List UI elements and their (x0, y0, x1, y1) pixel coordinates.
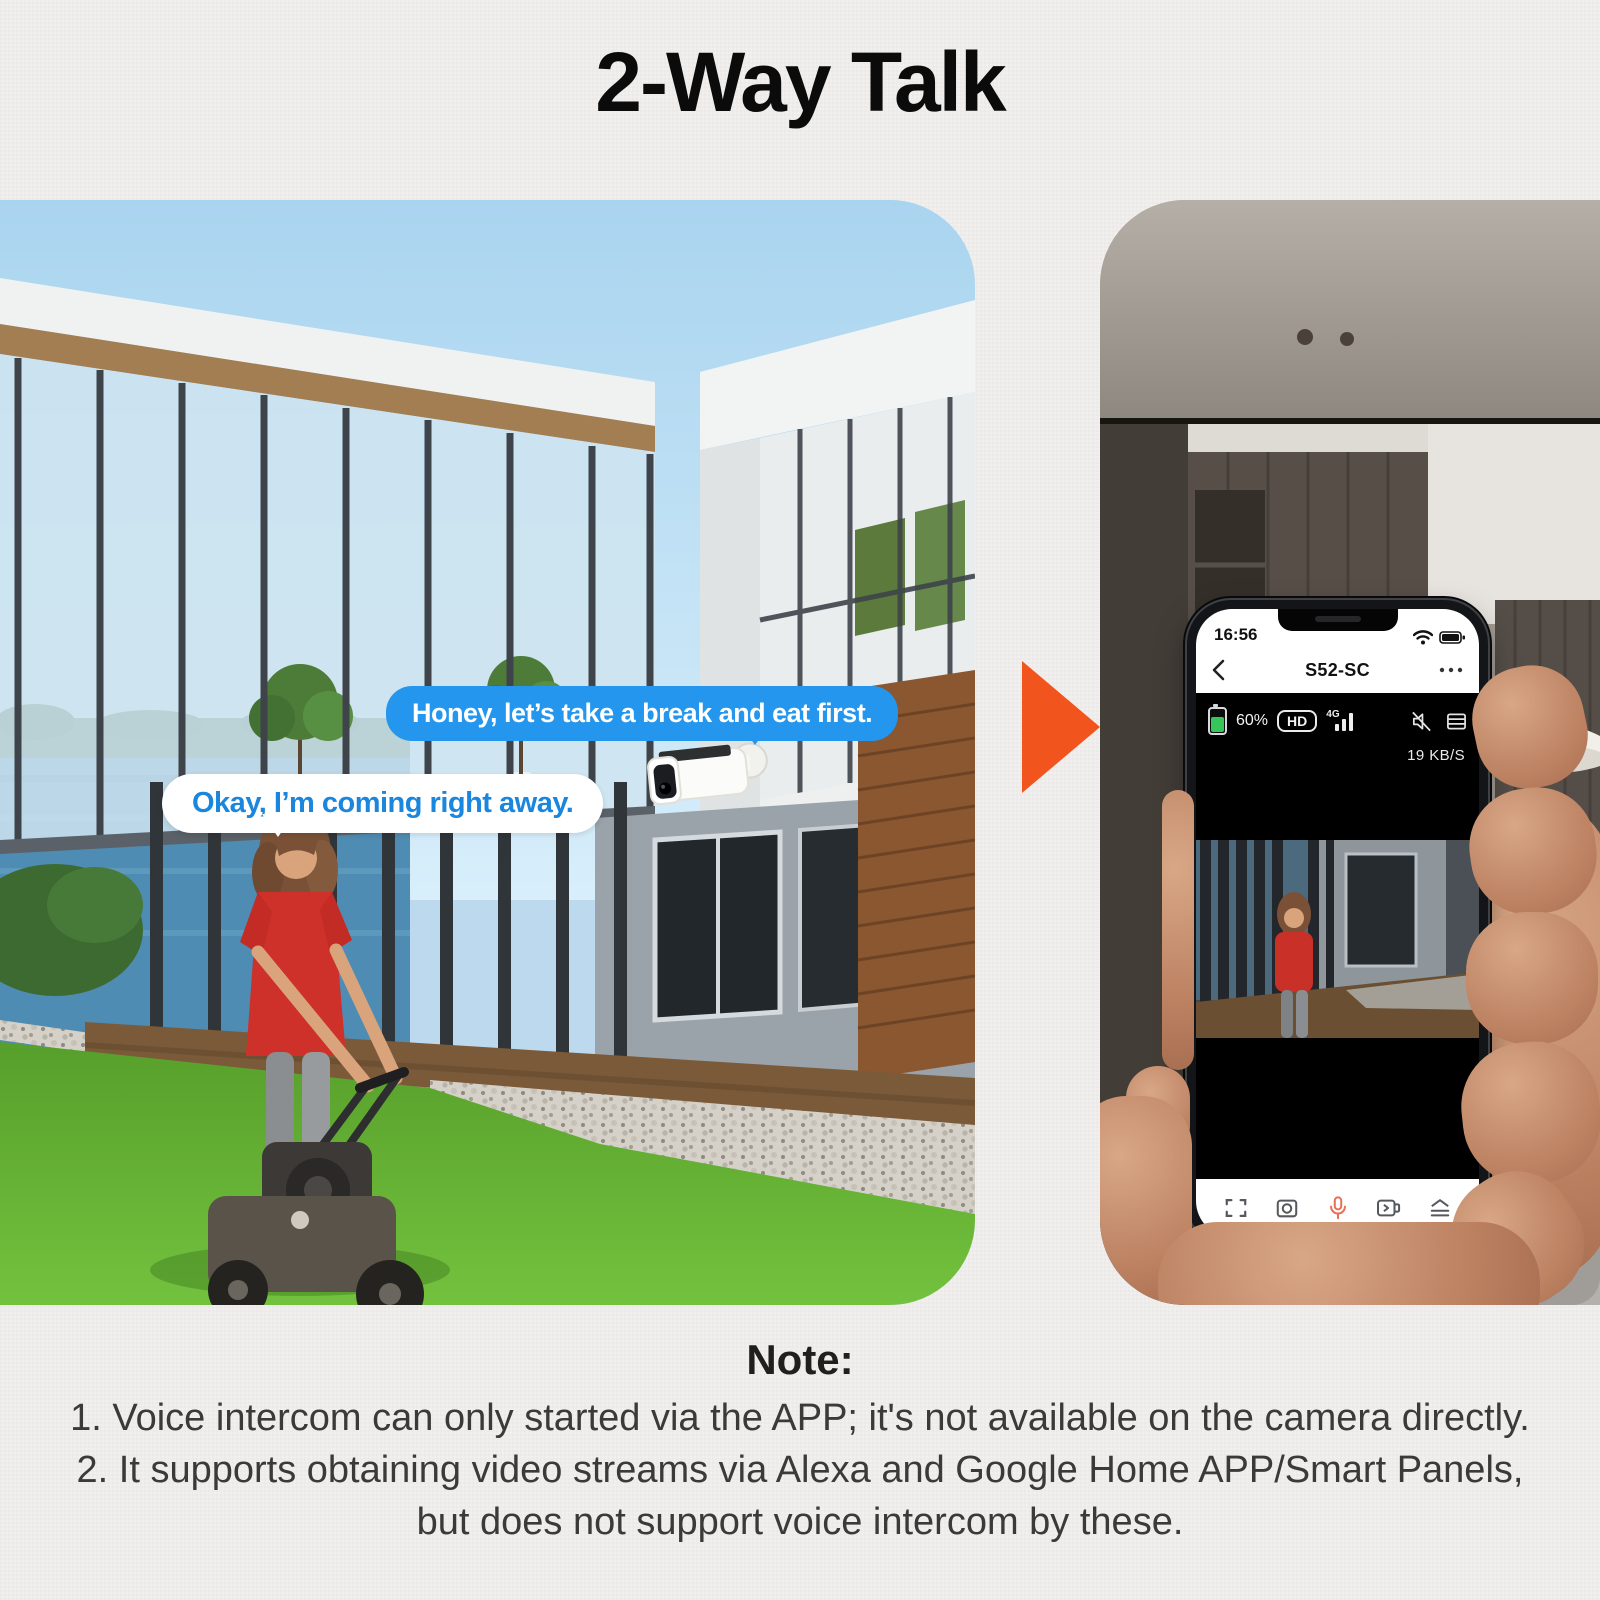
back-icon[interactable] (1212, 659, 1225, 681)
note-section: Note: 1. Voice intercom can only started… (0, 1336, 1600, 1548)
bitrate-label: 19 KB/S (1196, 735, 1479, 764)
arrow-right-icon (1022, 661, 1100, 793)
status-time: 16:56 (1214, 625, 1257, 645)
speaker-muted-icon[interactable] (1410, 710, 1433, 733)
battery-icon (1439, 631, 1465, 644)
hand-bottom (1158, 1222, 1540, 1305)
record-icon[interactable] (1372, 1191, 1406, 1225)
page: 2-Way Talk (0, 0, 1600, 1600)
hd-badge[interactable]: HD (1277, 710, 1317, 732)
house-scene (0, 200, 975, 1305)
live-view: 60% HD 4G (1196, 693, 1479, 1237)
camera-feed (1196, 840, 1479, 1038)
page-title: 2-Way Talk (0, 34, 1600, 131)
snapshot-icon[interactable] (1270, 1191, 1304, 1225)
wifi-icon (1413, 630, 1433, 645)
smartphone: 16:56 (1185, 598, 1490, 1248)
note-line-3: but does not support voice intercom by t… (0, 1496, 1600, 1548)
note-heading: Note: (0, 1336, 1600, 1384)
phone-header: 16:56 (1196, 609, 1479, 693)
finger (1162, 790, 1194, 1070)
finger (1466, 912, 1598, 1044)
note-line-1: 1. Voice intercom can only started via t… (0, 1392, 1600, 1444)
battery-level-icon (1208, 707, 1227, 735)
network-label: 4G (1326, 709, 1339, 720)
camera-feed-image (1196, 840, 1479, 1038)
phone-notch (1278, 609, 1398, 631)
menu-icon[interactable] (1423, 1191, 1457, 1225)
battery-percent: 60% (1236, 712, 1268, 730)
camera-speech-bubble: Honey, let’s take a break and eat first. (386, 686, 898, 741)
signal-4g-icon: 4G (1326, 709, 1356, 733)
status-bar: 16:56 (1196, 609, 1479, 647)
device-name: S52-SC (1252, 660, 1423, 681)
stream-stats-row: 60% HD 4G (1196, 693, 1479, 735)
app-nav-bar: S52-SC (1196, 647, 1479, 693)
phone-photo-panel: 16:56 (1100, 200, 1600, 1305)
stream-list-icon[interactable] (1446, 711, 1467, 732)
more-icon[interactable] (1439, 667, 1463, 673)
phone-screen: 16:56 (1196, 609, 1479, 1237)
fullscreen-icon[interactable] (1219, 1191, 1253, 1225)
house-photo-panel: Honey, let’s take a break and eat first.… (0, 200, 975, 1305)
note-line-2: 2. It supports obtaining video streams v… (0, 1444, 1600, 1496)
talk-mic-icon[interactable] (1321, 1191, 1355, 1225)
person-speech-bubble: Okay, I’m coming right away. (162, 774, 603, 833)
